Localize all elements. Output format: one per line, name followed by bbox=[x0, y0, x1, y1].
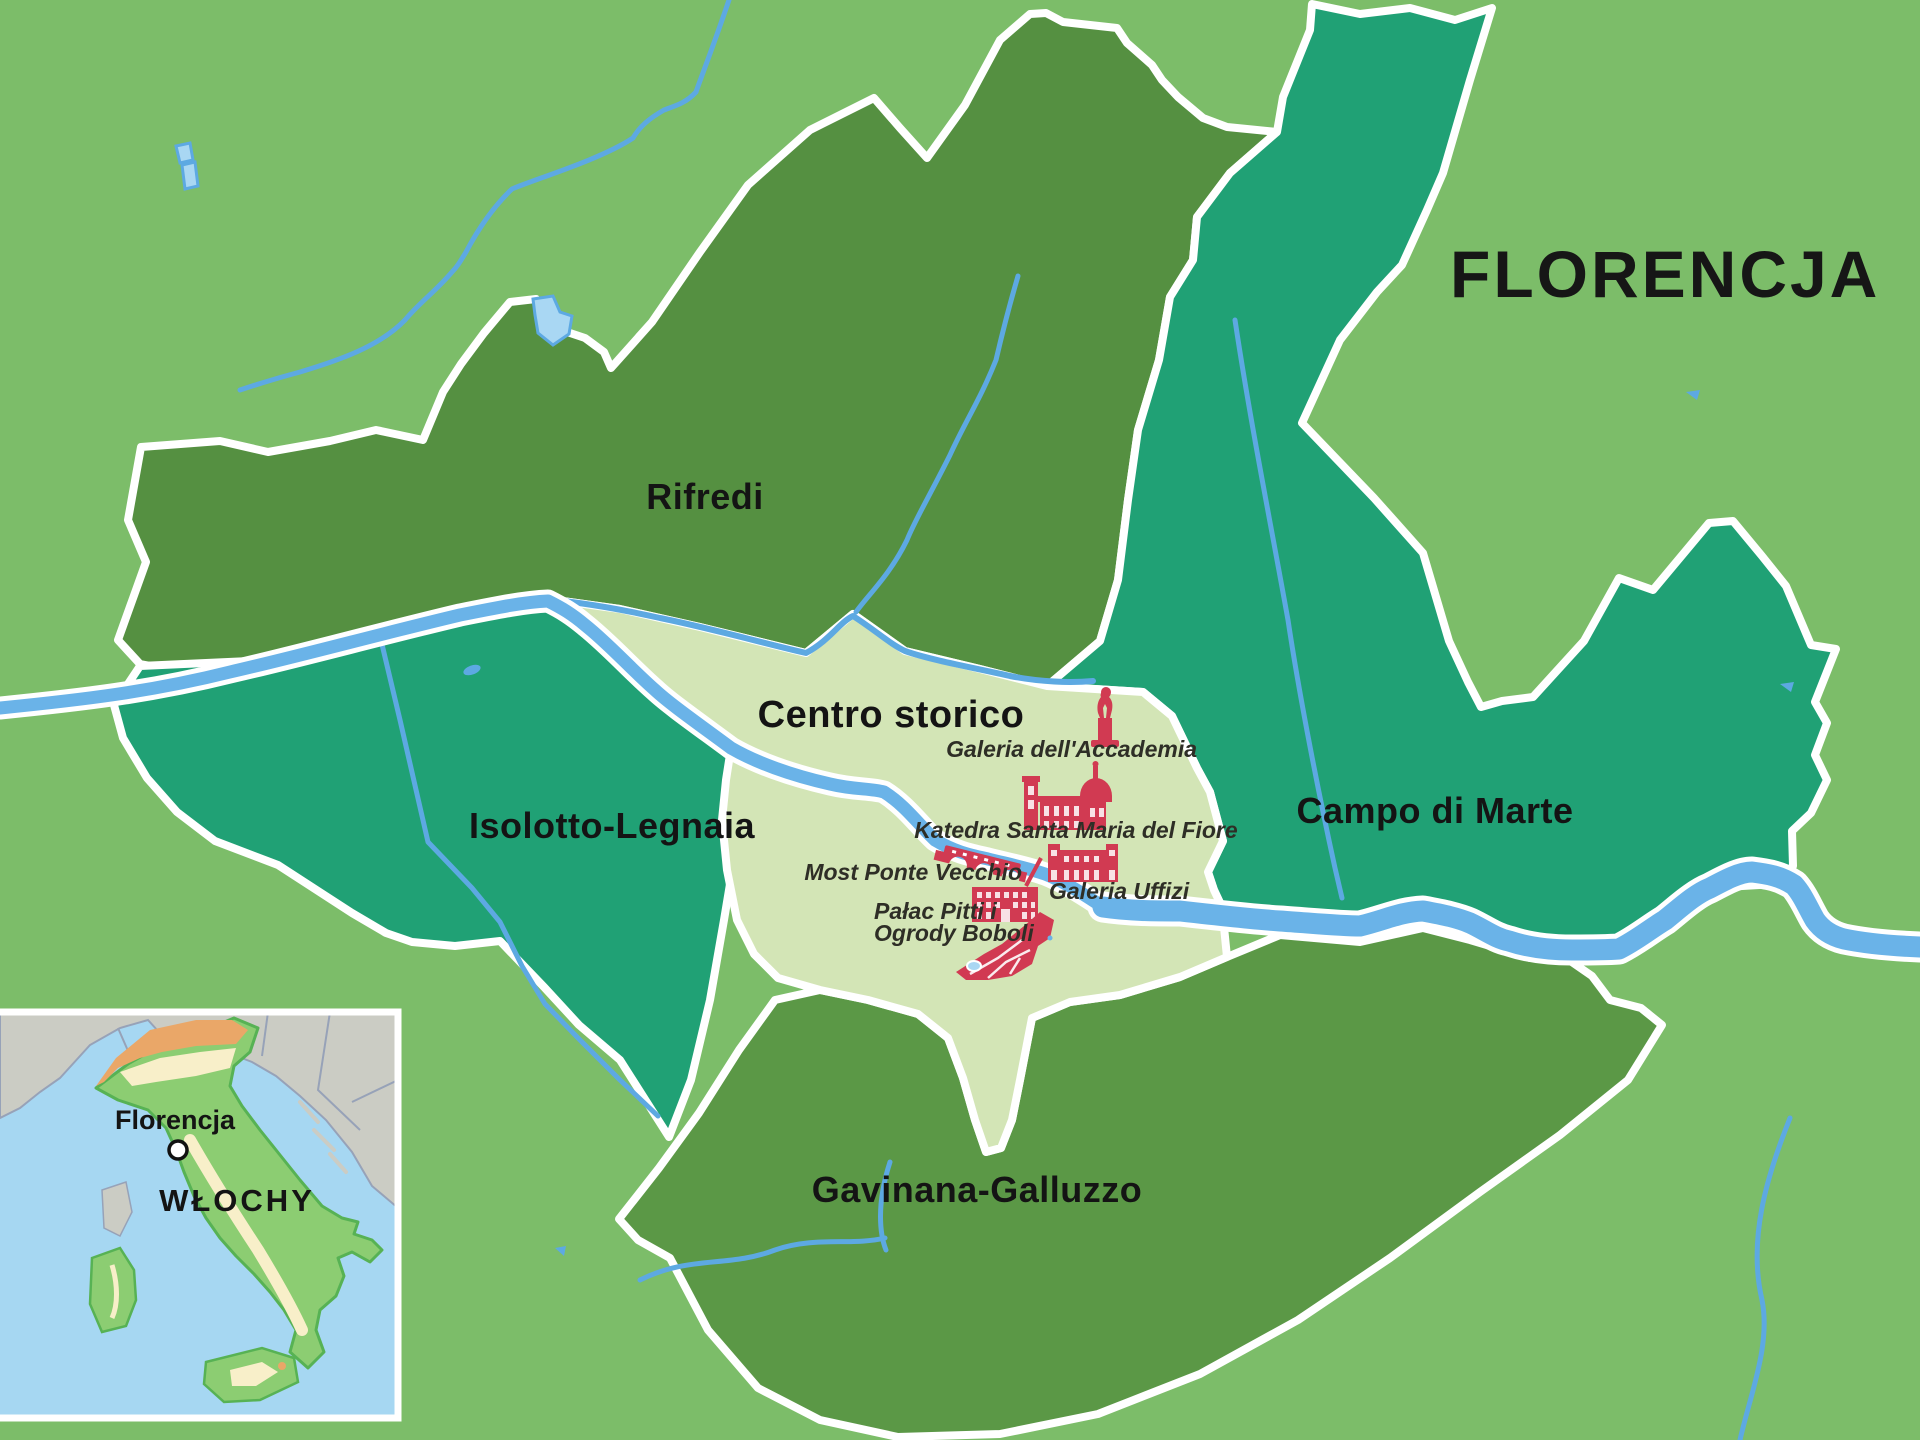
label-isolotto-legnaia: Isolotto-Legnaia bbox=[469, 805, 755, 846]
label-rifredi: Rifredi bbox=[646, 476, 764, 517]
lake-icon bbox=[176, 143, 193, 163]
label-campo-di-marte: Campo di Marte bbox=[1296, 790, 1573, 831]
florence-districts-map: Rifredi Isolotto-Legnaia Centro storico … bbox=[0, 0, 1920, 1440]
inset-etna-orange bbox=[278, 1362, 286, 1370]
label-galeria-uffizi: Galeria Uffizi bbox=[1049, 878, 1190, 904]
inset-sardinia bbox=[90, 1248, 136, 1332]
label-palac-pitti-line2: Ogrody Boboli bbox=[874, 920, 1034, 946]
inset-city-label: Florencja bbox=[115, 1105, 236, 1135]
florencja-marker bbox=[169, 1141, 187, 1159]
label-katedra: Katedra Santa Maria del Fiore bbox=[914, 817, 1238, 843]
label-galeria-accademia: Galeria dell'Accademia bbox=[946, 736, 1197, 762]
lake-icon bbox=[182, 162, 198, 189]
page-title: FLORENCJA bbox=[1450, 237, 1880, 311]
inset-country-label: WŁOCHY bbox=[159, 1183, 315, 1218]
label-gavinana-galluzzo: Gavinana-Galluzzo bbox=[812, 1169, 1143, 1210]
label-centro-storico: Centro storico bbox=[758, 694, 1025, 736]
label-most-ponte-vecchio: Most Ponte Vecchio bbox=[804, 859, 1022, 885]
inset-map: Florencja WŁOCHY bbox=[0, 1012, 398, 1418]
